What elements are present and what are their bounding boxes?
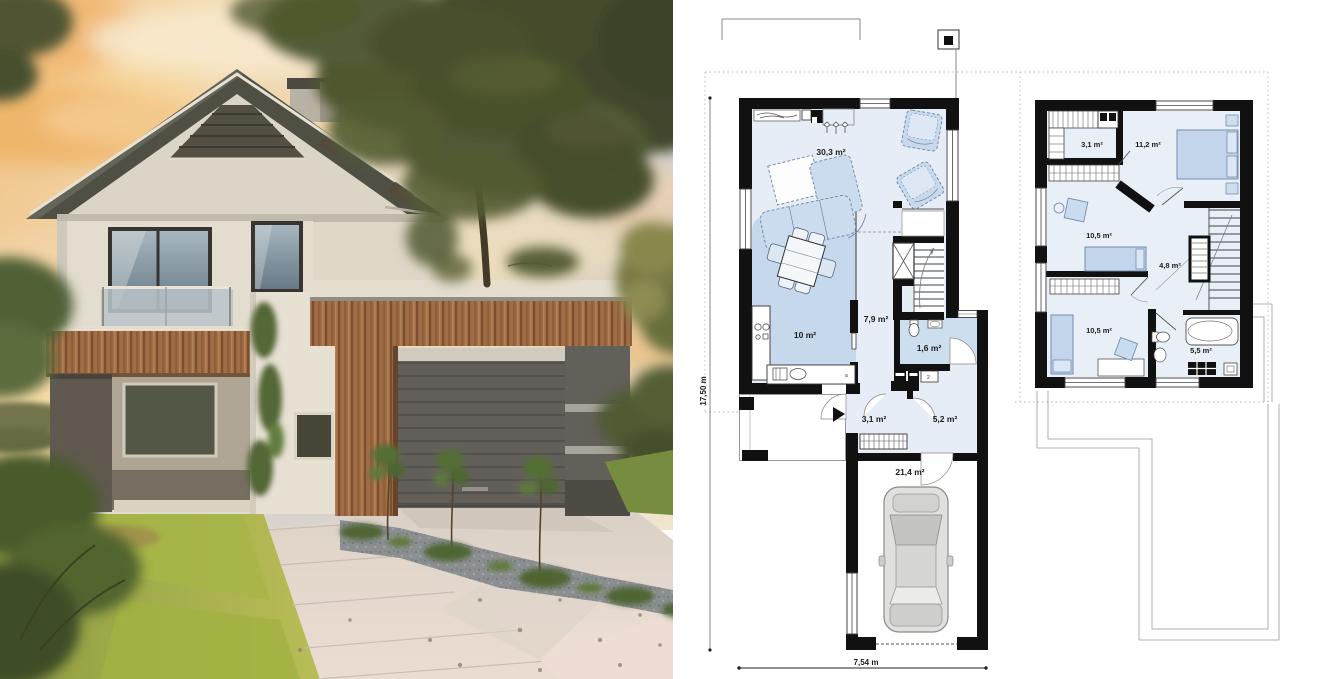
svg-text:2: 2 bbox=[927, 375, 930, 381]
svg-text:7,9 m²: 7,9 m² bbox=[864, 314, 889, 324]
svg-text:17,50 m: 17,50 m bbox=[699, 376, 708, 405]
svg-text:10,5 m²: 10,5 m² bbox=[1086, 231, 1112, 240]
svg-text:10,5 m²: 10,5 m² bbox=[1086, 326, 1112, 335]
svg-text:11,2 m²: 11,2 m² bbox=[1135, 140, 1161, 149]
svg-text:4,8 m²: 4,8 m² bbox=[1159, 261, 1181, 270]
svg-text:7,54 m: 7,54 m bbox=[854, 658, 879, 667]
svg-text:10 m²: 10 m² bbox=[794, 330, 816, 340]
svg-text:3,1 m²: 3,1 m² bbox=[1081, 140, 1103, 149]
svg-text:3,1 m²: 3,1 m² bbox=[862, 414, 887, 424]
svg-text:30,3 m²: 30,3 m² bbox=[816, 147, 845, 157]
svg-text:5,2 m²: 5,2 m² bbox=[933, 414, 958, 424]
svg-text:1,6 m²: 1,6 m² bbox=[917, 343, 942, 353]
svg-text:21,4 m²: 21,4 m² bbox=[895, 467, 924, 477]
svg-text:5,5 m²: 5,5 m² bbox=[1190, 346, 1212, 355]
svg-text:a: a bbox=[845, 373, 848, 379]
